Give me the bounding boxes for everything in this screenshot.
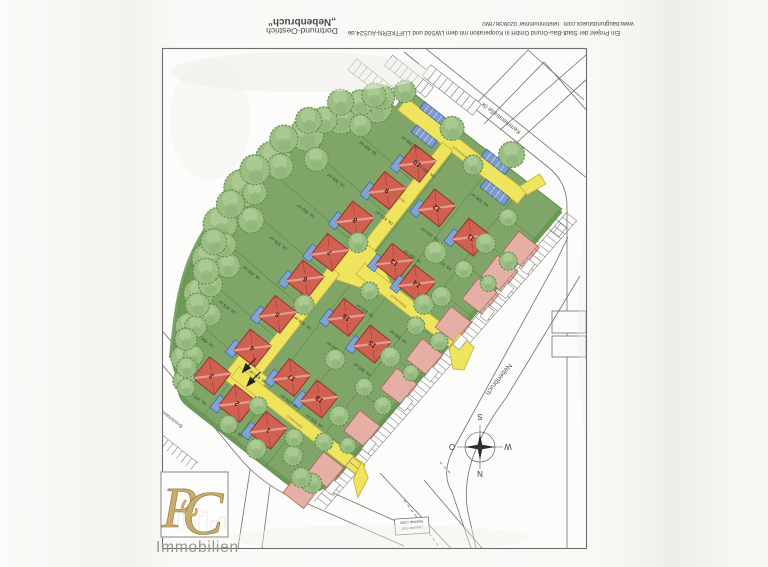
svg-text:S: S <box>477 412 482 421</box>
svg-text:W: W <box>504 442 512 451</box>
svg-text:O: O <box>449 442 455 451</box>
svg-text:N: N <box>477 469 483 478</box>
svg-text:Immobilien: Immobilien <box>156 539 239 556</box>
